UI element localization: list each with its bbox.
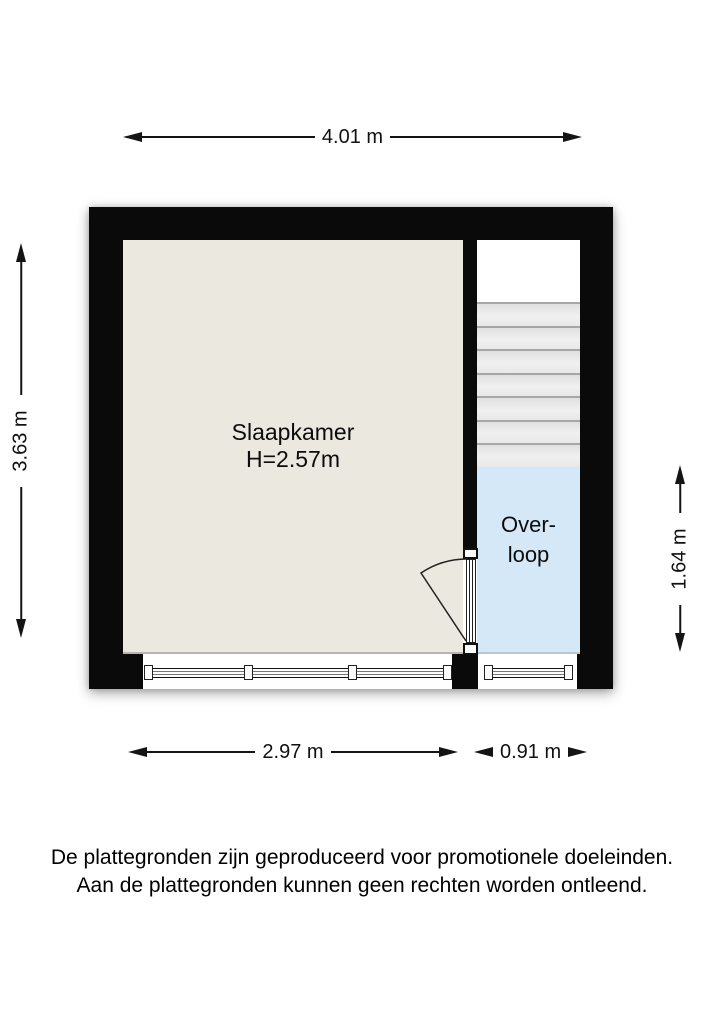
window-glazing	[357, 668, 443, 678]
dimension-line	[331, 751, 439, 753]
window-post	[244, 665, 253, 680]
dimension-line	[390, 136, 563, 138]
dimension-bottom-landing-label: 0.91 m	[493, 741, 568, 764]
dimension-line	[679, 481, 681, 513]
floor-plan: Slaapkamer H=2.57m Over- loop	[89, 207, 613, 689]
dimension-top: 4.01 m	[123, 127, 582, 147]
disclaimer: De plattegronden zijn geproduceerd voor …	[0, 844, 724, 900]
window-post	[348, 665, 357, 680]
arrow-left-icon	[474, 747, 493, 757]
window-post	[144, 665, 153, 680]
window-post	[484, 665, 493, 680]
door-swing-icon	[89, 207, 613, 689]
dimension-line	[20, 259, 22, 395]
dimension-line	[142, 136, 315, 138]
arrow-right-icon	[568, 747, 587, 757]
arrow-left-icon	[123, 132, 142, 142]
dimension-left: 3.63 m	[11, 243, 31, 638]
arrow-right-icon	[439, 747, 458, 757]
disclaimer-line2: Aan de plattegronden kunnen geen rechten…	[0, 872, 724, 900]
window-glazing	[253, 668, 348, 678]
dimension-bottom-room-label: 2.97 m	[255, 741, 330, 764]
dimension-left-label: 3.63 m	[10, 410, 33, 471]
dimension-line	[20, 487, 22, 623]
window-glazing	[493, 668, 564, 678]
window-post	[443, 665, 452, 680]
arrow-left-icon	[128, 747, 147, 757]
dimension-right: 1.64 m	[670, 465, 690, 652]
dimension-line	[679, 605, 681, 637]
dimension-top-label: 4.01 m	[315, 126, 390, 149]
arrow-down-icon	[675, 633, 685, 652]
window-post	[564, 665, 573, 680]
disclaimer-line1: De plattegronden zijn geproduceerd voor …	[0, 844, 724, 872]
dimension-bottom-landing: 0.91 m	[474, 742, 584, 762]
dimension-right-label: 1.64 m	[669, 528, 692, 589]
arrow-right-icon	[563, 132, 582, 142]
arrow-down-icon	[16, 619, 26, 638]
dimension-line	[147, 751, 255, 753]
dimension-bottom-room: 2.97 m	[128, 742, 458, 762]
window-glazing	[153, 668, 244, 678]
